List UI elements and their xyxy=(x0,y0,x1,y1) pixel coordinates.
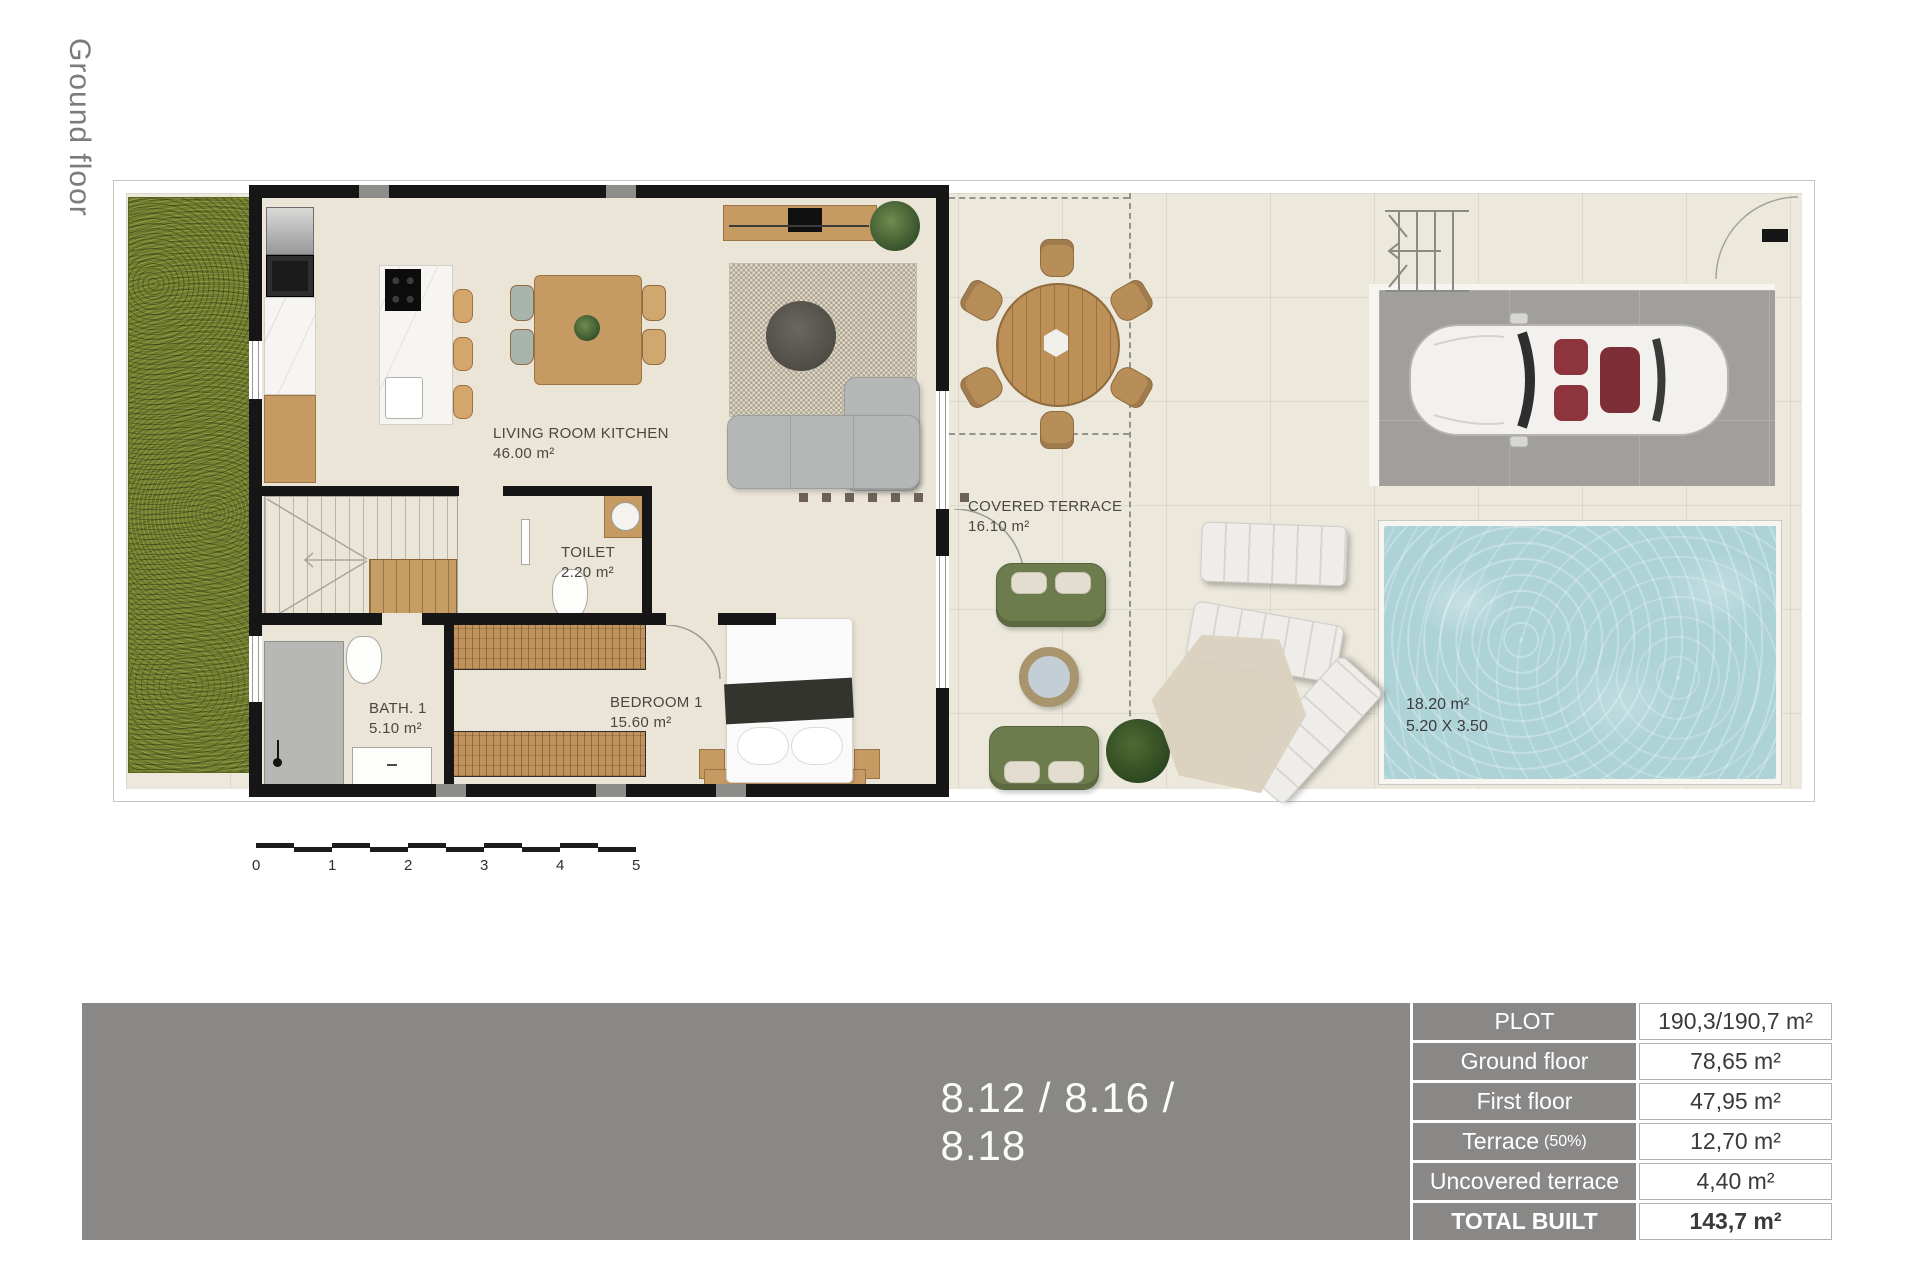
island-sink xyxy=(385,377,423,419)
room-label-toilet: TOILET 2.20 m² xyxy=(561,543,615,584)
outdoor-sofa xyxy=(989,726,1099,790)
cooktop xyxy=(385,269,421,311)
areas-row-value: 12,70 m² xyxy=(1639,1123,1832,1160)
pillar xyxy=(716,784,746,797)
room-name: LIVING ROOM KITCHEN xyxy=(493,424,669,444)
cushion xyxy=(1048,761,1084,783)
scale-segment xyxy=(408,843,446,848)
room-area: 2.20 m² xyxy=(561,563,615,583)
areas-row-label-text: Terrace xyxy=(1462,1128,1539,1155)
fridge xyxy=(266,207,314,255)
kitchen-counter xyxy=(264,297,316,395)
sliding-door xyxy=(936,391,949,509)
pillow xyxy=(737,727,789,765)
toilet-door xyxy=(521,519,530,565)
scale-tick: 3 xyxy=(480,857,488,874)
areas-row-value: 78,65 m² xyxy=(1639,1043,1832,1080)
door-opening xyxy=(382,613,422,625)
room-area: 15.60 m² xyxy=(610,713,703,733)
areas-row-label: TOTAL BUILT xyxy=(1413,1203,1636,1240)
scale-tick: 2 xyxy=(404,857,412,874)
room-name: COVERED TERRACE xyxy=(968,497,1122,517)
wardrobe xyxy=(450,624,646,670)
window xyxy=(249,636,262,702)
pillar xyxy=(359,185,389,198)
bar-stool xyxy=(453,289,473,323)
wall xyxy=(444,613,454,784)
scale-segment xyxy=(256,843,294,848)
door-opening xyxy=(459,486,503,496)
wall-north xyxy=(249,185,949,198)
areas-table: PLOT 190,3/190,7 m² Ground floor 78,65 m… xyxy=(1413,1003,1832,1240)
terrace-chair xyxy=(1040,411,1074,449)
floor-title: Ground floor xyxy=(62,38,96,217)
scale-segment xyxy=(332,843,370,848)
wall xyxy=(262,486,652,496)
room-label-living: LIVING ROOM KITCHEN 46.00 m² xyxy=(493,424,669,465)
areas-row-label: Ground floor xyxy=(1413,1043,1636,1080)
pool-label: 18.20 m² 5.20 X 3.50 xyxy=(1406,694,1488,739)
dining-chair xyxy=(510,285,534,321)
terrace-boundary xyxy=(949,433,1129,435)
tv xyxy=(788,208,822,232)
scale-segment xyxy=(560,843,598,848)
window xyxy=(249,341,262,399)
outdoor-sofa xyxy=(996,563,1106,627)
wall xyxy=(642,486,652,625)
room-name: BEDROOM 1 xyxy=(610,693,703,713)
scale-segment xyxy=(598,847,636,852)
dining-chair xyxy=(510,329,534,365)
shower-arm xyxy=(277,740,279,762)
areas-row-label: Terrace (50%) xyxy=(1413,1123,1636,1160)
wall-west xyxy=(249,185,262,797)
pillar xyxy=(596,784,626,797)
scale-tick: 0 xyxy=(252,857,260,874)
scale-tick: 1 xyxy=(328,857,336,874)
scale-segment xyxy=(484,843,522,848)
units-label: 8.12 / 8.16 / 8.18 xyxy=(941,1074,1254,1170)
coffee-table xyxy=(1019,647,1079,707)
toilet-sink xyxy=(611,502,640,531)
door-opening xyxy=(666,613,718,625)
dining-chair xyxy=(642,329,666,365)
units-banner: 8.12 / 8.16 / 8.18 xyxy=(82,1003,1410,1240)
pillar xyxy=(606,185,636,198)
tv-console-line xyxy=(729,225,869,227)
sun-lounger xyxy=(1200,521,1348,586)
pool-area: 18.20 m² xyxy=(1406,694,1488,716)
scale-segment xyxy=(294,847,332,852)
oven xyxy=(266,255,314,297)
room-label-bath: BATH. 1 5.10 m² xyxy=(369,699,427,740)
pillow xyxy=(791,727,843,765)
areas-row-value: 143,7 m² xyxy=(1639,1203,1832,1240)
pool-dimensions: 5.20 X 3.50 xyxy=(1406,716,1488,738)
terrace-boundary xyxy=(949,197,1129,199)
bedroom-door-arc xyxy=(666,625,722,681)
scale-segment xyxy=(446,847,484,852)
room-area: 16.10 m² xyxy=(968,517,1122,537)
car xyxy=(1404,301,1734,459)
room-area: 5.10 m² xyxy=(369,719,427,739)
scale-tick: 5 xyxy=(632,857,640,874)
sliding-door xyxy=(936,556,949,688)
cushion xyxy=(1055,572,1091,594)
room-label-terrace: COVERED TERRACE 16.10 m² xyxy=(968,497,1122,538)
room-name: TOILET xyxy=(561,543,615,563)
stairs xyxy=(264,496,458,624)
pillar xyxy=(436,784,466,797)
areas-row-label-note: (50%) xyxy=(1544,1133,1587,1151)
toilet-sink-cabinet xyxy=(604,494,646,538)
gate-wall-stub xyxy=(1762,229,1788,242)
scale-tick: 4 xyxy=(556,857,564,874)
bath-wc xyxy=(346,636,382,684)
areas-row-value: 190,3/190,7 m² xyxy=(1639,1003,1832,1040)
sofa xyxy=(727,415,920,489)
scale-segment xyxy=(522,847,560,852)
scale-bar: 0 1 2 3 4 5 xyxy=(256,843,646,877)
bed xyxy=(726,618,853,783)
areas-row-label: Uncovered terrace xyxy=(1413,1163,1636,1200)
living-plant xyxy=(870,201,920,251)
areas-row-value: 47,95 m² xyxy=(1639,1083,1832,1120)
areas-row-value: 4,40 m² xyxy=(1639,1163,1832,1200)
shower xyxy=(264,641,344,791)
bed-throw xyxy=(724,678,854,725)
areas-row-label: PLOT xyxy=(1413,1003,1636,1040)
scale-segment xyxy=(370,847,408,852)
bush xyxy=(1106,719,1170,783)
room-label-bedroom: BEDROOM 1 15.60 m² xyxy=(610,693,703,734)
terrace-chair xyxy=(1040,239,1074,277)
exterior-stairs xyxy=(1381,203,1473,299)
bath-faucet xyxy=(387,764,397,766)
bar-stool xyxy=(453,385,473,419)
cushion xyxy=(1004,761,1040,783)
garden-grass xyxy=(128,197,252,773)
kitchen-cabinet xyxy=(264,395,316,483)
cushion xyxy=(1011,572,1047,594)
floor-plan: 18.20 m² 5.20 X 3.50 xyxy=(113,180,1815,802)
bar-stool xyxy=(453,337,473,371)
areas-row-label: First floor xyxy=(1413,1083,1636,1120)
room-name: BATH. 1 xyxy=(369,699,427,719)
table-plant xyxy=(574,315,600,341)
page: { "page": { "floor_label": "Ground floor… xyxy=(0,0,1920,1280)
room-area: 46.00 m² xyxy=(493,444,669,464)
pool: 18.20 m² 5.20 X 3.50 xyxy=(1379,521,1781,784)
dining-chair xyxy=(642,285,666,321)
wardrobe xyxy=(450,731,646,777)
round-rug xyxy=(766,301,836,371)
